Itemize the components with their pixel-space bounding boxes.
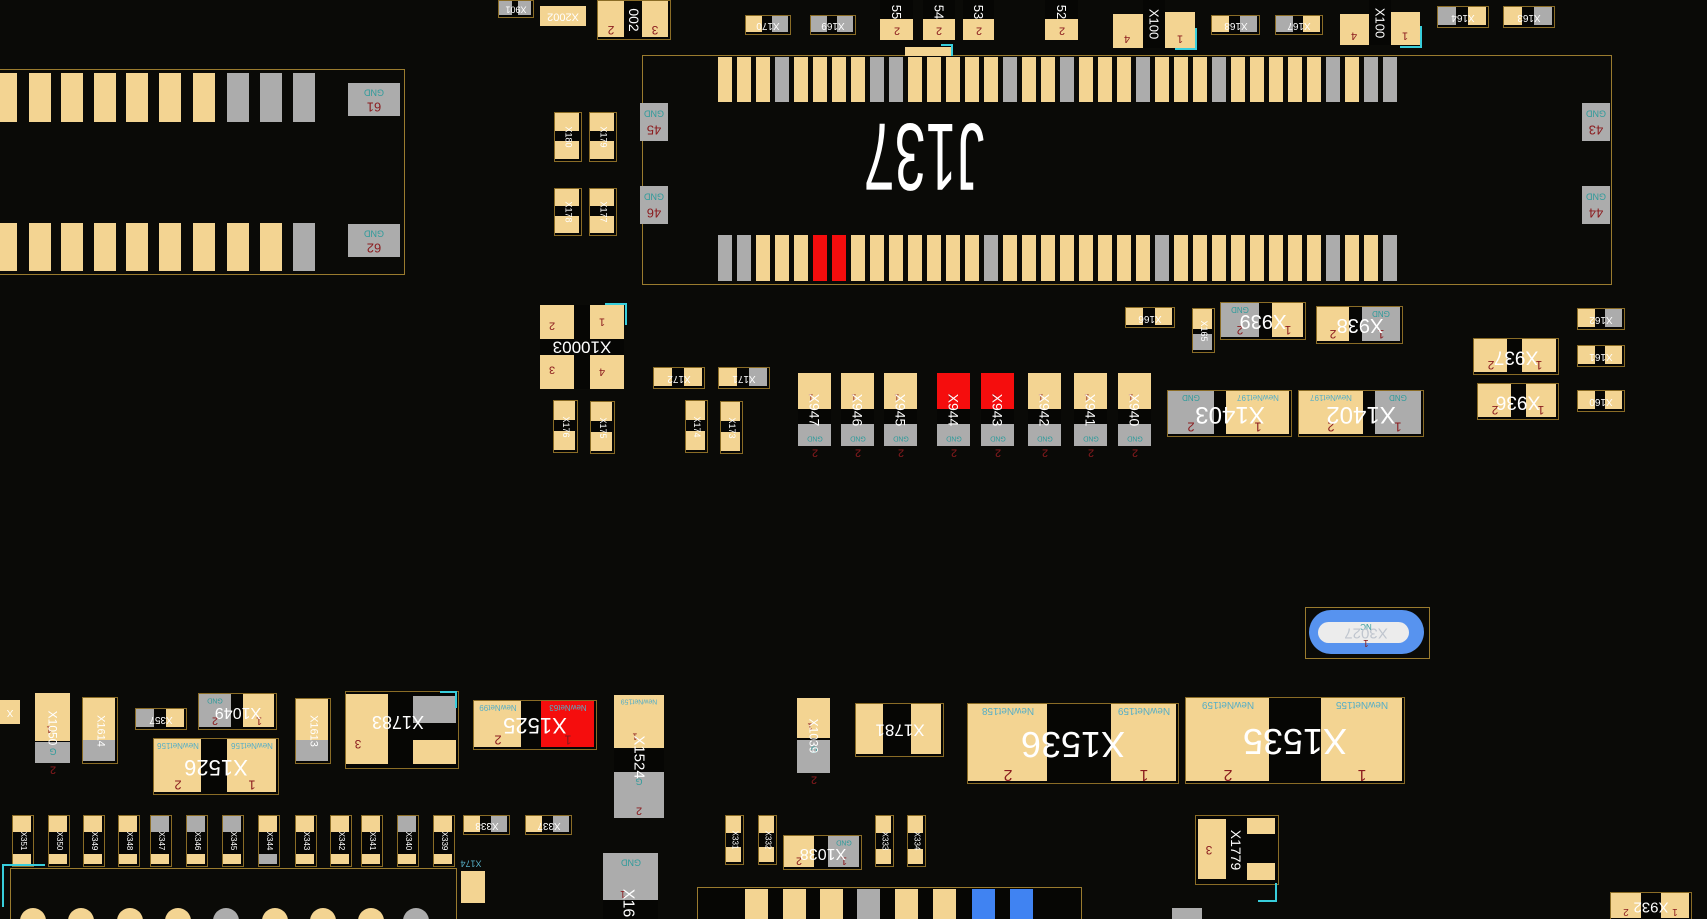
pad <box>718 235 732 281</box>
component-X938[interactable]: GND21X938 <box>1316 306 1403 344</box>
component-X1783[interactable]: X17833 <box>345 691 459 769</box>
ref-label: X171 <box>732 373 755 383</box>
ref-label: X338 <box>475 820 498 830</box>
ref-label: X1783 <box>372 713 424 731</box>
pin-number: 2 <box>811 447 817 458</box>
component-X165[interactable]: X165 <box>1192 308 1215 353</box>
pad <box>1247 818 1275 834</box>
ref-label: X161 <box>1589 351 1612 361</box>
pad <box>1364 57 1378 102</box>
pin-number: 4 <box>1124 33 1130 44</box>
net-label: GND <box>990 435 1006 442</box>
ref-label: X163 <box>1517 12 1540 22</box>
ref-label: X348 <box>125 832 133 851</box>
component-X345[interactable]: X345 <box>222 815 244 867</box>
ref-label: X944 <box>947 393 961 426</box>
ref-label: X342 <box>337 832 345 851</box>
ref-label: X <box>7 707 14 717</box>
component-X343[interactable]: X343 <box>295 815 317 867</box>
component-X1038[interactable]: GND21X1038 <box>783 835 862 870</box>
pad <box>1098 57 1112 102</box>
component-X333[interactable]: X333 <box>875 815 894 867</box>
ref-label: X168 <box>1224 20 1247 30</box>
selection-bracket-icon <box>625 303 627 325</box>
pad <box>434 854 452 864</box>
pad <box>1079 235 1093 281</box>
pad <box>590 305 624 339</box>
component-X177[interactable]: X177 <box>589 188 617 236</box>
ref-label: X334 <box>913 832 921 851</box>
pin-number: 2 <box>1330 328 1337 340</box>
component-X349[interactable]: X349 <box>83 815 105 867</box>
component-X164[interactable]: X164 <box>1437 6 1489 28</box>
pin-number: 2 <box>494 734 501 747</box>
component-X100b[interactable]: X10041 <box>1340 0 1420 45</box>
ref-label: X347 <box>157 832 165 851</box>
component-X350[interactable]: X350 <box>48 815 70 867</box>
ref-label: X173 <box>727 417 736 438</box>
component-X1781[interactable]: X1781 <box>855 703 944 757</box>
ref-label: X345 <box>229 832 237 851</box>
pin-number: 2 <box>1623 906 1629 916</box>
pad <box>870 57 884 102</box>
selection-bracket-icon <box>1275 883 1277 902</box>
component-X901[interactable]: X901 <box>498 0 534 18</box>
net-label: GND <box>1037 435 1053 442</box>
pad <box>1269 57 1283 102</box>
pad <box>398 854 416 864</box>
pin-number: 2 <box>1003 766 1012 782</box>
component-X180[interactable]: X180 <box>554 112 582 162</box>
component-X337[interactable]: X337 <box>525 815 572 835</box>
pad <box>151 854 169 864</box>
ref-label: X350 <box>55 832 63 851</box>
pad <box>745 889 768 919</box>
pad <box>434 816 452 832</box>
component-X176[interactable]: X176 <box>553 400 578 453</box>
ref-label-j137: J137 <box>864 108 985 204</box>
net-label: NewNet159 <box>621 698 658 705</box>
component-X1039[interactable]: 1G2X1039 <box>797 698 830 785</box>
board-canvas[interactable]: GND45GND46GND43GND44J137GND61GND62X901X2… <box>0 0 1707 919</box>
pad <box>223 854 241 864</box>
component-X162[interactable]: X162 <box>1577 308 1625 330</box>
pad <box>1326 235 1340 281</box>
component-X171[interactable]: X171 <box>718 367 770 389</box>
pad <box>1212 235 1226 281</box>
ref-label: X936 <box>1496 392 1540 411</box>
pad <box>1307 57 1321 102</box>
component-X1402[interactable]: NewNet197GND21X1402 <box>1298 390 1424 437</box>
pin-number: 2 <box>174 779 181 792</box>
net-label: GND <box>850 435 866 442</box>
ref-label: X349 <box>90 832 98 851</box>
ref-label: X351 <box>19 832 27 851</box>
pad <box>946 235 960 281</box>
pad <box>889 235 903 281</box>
net-label: NewNet156 <box>231 741 273 749</box>
ref-label: X169 <box>821 20 844 30</box>
component-X937[interactable]: 21X937 <box>1473 338 1559 375</box>
ref-label: X943 <box>991 393 1005 426</box>
ref-label: X178 <box>564 201 573 222</box>
pin-number: 2 <box>1041 447 1047 458</box>
pad <box>794 235 808 281</box>
component-X1536[interactable]: NewNet158NewNet15921X1536 <box>967 703 1179 784</box>
pad <box>126 223 148 271</box>
pin-number: 3 <box>549 364 555 375</box>
ref-label: X16 <box>620 889 636 917</box>
pad <box>61 73 83 122</box>
component-X952[interactable]: 522 <box>1045 0 1078 40</box>
ref-label: 55 <box>890 5 903 19</box>
pad <box>1079 57 1093 102</box>
pad <box>1364 235 1378 281</box>
component-X1613[interactable]: X1613 <box>295 698 331 764</box>
net-label: GND <box>644 192 664 201</box>
component-X1526[interactable]: NewNet156NewNet15621X1526 <box>153 738 279 795</box>
net-label: GND <box>946 435 962 442</box>
pad <box>813 235 827 281</box>
ref-label: X344 <box>265 832 273 851</box>
component-X351[interactable]: X351 <box>12 815 34 867</box>
component-X173[interactable]: X173 <box>720 401 743 454</box>
pad <box>1250 235 1264 281</box>
net-label: NewNet156 <box>157 741 199 749</box>
pin-number: 1 <box>599 316 605 327</box>
component-X3027[interactable]: NCX30271 <box>1305 607 1430 659</box>
pin-number: 4 <box>599 366 605 377</box>
pad <box>1022 235 1036 281</box>
ref-label: X938 <box>1336 315 1383 335</box>
component-X1403[interactable]: GNDNewNet19721X1403 <box>1167 390 1292 437</box>
ref-label: X939 <box>1240 311 1287 331</box>
selection-bracket-icon <box>1400 46 1422 48</box>
pad <box>13 816 31 832</box>
component-X2002-label[interactable]: X2002 <box>540 6 586 26</box>
pin-number: 45 <box>647 124 661 137</box>
pin-number: 2 <box>1058 25 1064 36</box>
ref-label: X1049 <box>214 704 260 720</box>
pad <box>187 854 205 864</box>
pad <box>362 816 380 832</box>
component-X1525[interactable]: NewNet99NewNet6321X1525 <box>473 700 597 750</box>
pad <box>119 816 137 832</box>
pad <box>413 740 456 764</box>
pad <box>1098 235 1112 281</box>
pin-number: 2 <box>636 805 642 816</box>
component-X944[interactable]: 1GND2X944 <box>937 373 970 458</box>
pad <box>946 57 960 102</box>
ref-label: X1402 <box>1326 402 1395 426</box>
component-X939[interactable]: GND21X939 <box>1220 302 1306 340</box>
component-X1535[interactable]: NewNet159NewNet15521X1535 <box>1185 697 1405 784</box>
ref-label: X331 <box>731 831 739 850</box>
component-X945[interactable]: 1GND2X945 <box>884 373 917 458</box>
pin-number: 46 <box>647 207 661 220</box>
pad <box>296 816 314 832</box>
net-label: GND <box>1586 192 1606 201</box>
pad <box>972 889 995 919</box>
component-X342[interactable]: X342 <box>330 815 352 867</box>
component-X1614[interactable]: X1614 <box>82 697 118 764</box>
pad <box>876 816 891 833</box>
component-X940[interactable]: 1GND2X940 <box>1118 373 1151 458</box>
component-X160[interactable]: X160 <box>1577 390 1625 412</box>
component-X932[interactable]: 21X932 <box>1610 892 1692 919</box>
pad <box>851 57 865 102</box>
pad <box>1155 235 1169 281</box>
selection-bracket-icon <box>2 864 45 866</box>
pad <box>933 889 956 919</box>
ref-label: X10003 <box>553 339 612 356</box>
ref-label: X166 <box>1138 313 1161 323</box>
component-X339[interactable]: X339 <box>433 815 455 867</box>
pad <box>540 355 574 389</box>
pad <box>259 854 277 864</box>
component-X946[interactable]: 1GND2X946 <box>841 373 874 458</box>
pad <box>260 73 282 122</box>
component-X1049[interactable]: GND21X1049 <box>198 693 277 730</box>
pin-number: 2 <box>810 774 816 785</box>
component-X344[interactable]: X344 <box>258 815 280 867</box>
component-X172[interactable]: X172 <box>653 367 705 389</box>
pin-number: 4 <box>1351 30 1357 41</box>
pad <box>1383 235 1397 281</box>
ref-label: X162 <box>1589 314 1612 324</box>
component-X942[interactable]: 1GND2X942 <box>1028 373 1061 458</box>
component-X943[interactable]: 1GND2X943 <box>981 373 1014 458</box>
pad <box>813 57 827 102</box>
pad <box>775 57 789 102</box>
pad <box>1231 235 1245 281</box>
ref-label: X946 <box>851 393 865 426</box>
pad <box>1193 57 1207 102</box>
pin-number: 2 <box>608 24 615 36</box>
pad <box>1117 235 1131 281</box>
gnd-pin-label: GND43 <box>1582 103 1610 141</box>
pad <box>1060 235 1074 281</box>
ref-label: X932 <box>1633 899 1668 914</box>
component-X1524[interactable]: NewNet1591G2X1524 <box>614 695 664 818</box>
ref-label: X174 <box>692 416 701 437</box>
pad <box>1383 57 1397 102</box>
pin-number: 2 <box>1223 766 1232 782</box>
pad <box>1231 57 1245 102</box>
net-label: GND <box>207 697 223 704</box>
ref-label: 54 <box>933 5 946 19</box>
pad <box>737 57 751 102</box>
pad <box>0 223 17 271</box>
pad <box>1345 57 1359 102</box>
pad <box>362 854 380 864</box>
component-X16[interactable]: GND1X16 <box>603 853 658 919</box>
pin-number: 1 <box>1363 637 1369 647</box>
pad <box>193 223 215 271</box>
pin-number: 62 <box>367 242 381 255</box>
pad <box>126 73 148 122</box>
pad <box>331 854 349 864</box>
pin-number: 61 <box>367 101 381 114</box>
pad <box>851 235 865 281</box>
component-X347[interactable]: X347 <box>150 815 172 867</box>
ref-label: X165 <box>1199 320 1208 341</box>
pad <box>1003 57 1017 102</box>
pad <box>293 223 315 271</box>
component-X334[interactable]: X334 <box>907 815 926 867</box>
net-label: NewNet197 <box>1237 393 1279 401</box>
component-X955[interactable]: 552 <box>880 0 913 40</box>
ref-label: 002 <box>627 8 641 31</box>
component-X346[interactable]: X346 <box>186 815 208 867</box>
ref-label: X340 <box>404 832 412 851</box>
component-X168[interactable]: X168 <box>1211 15 1260 35</box>
ref-label: X164 <box>1451 12 1474 22</box>
component-X357[interactable]: X357 <box>135 708 187 730</box>
pad <box>1060 57 1074 102</box>
pad <box>84 854 102 864</box>
pad <box>1117 57 1131 102</box>
component-X331[interactable]: X331 <box>725 815 744 865</box>
pad <box>1003 235 1017 281</box>
ref-label: X333 <box>881 832 889 851</box>
ref-label: 52 <box>1055 5 1068 19</box>
pin-number: 3 <box>652 24 659 36</box>
pad <box>756 57 770 102</box>
ref-label: X2002 <box>547 11 579 22</box>
component-X954[interactable]: 542 <box>923 0 955 40</box>
pin-number: 2 <box>854 447 860 458</box>
pad <box>590 355 624 389</box>
net-label: GND <box>644 109 664 118</box>
component-X936[interactable]: 21X936 <box>1477 383 1559 420</box>
component-X179[interactable]: X179 <box>589 112 617 162</box>
pad <box>540 305 574 339</box>
selection-bracket-icon <box>1195 28 1197 50</box>
selection-bracket-icon <box>605 303 627 305</box>
component-X166[interactable]: X166 <box>1125 307 1175 328</box>
component-X175[interactable]: X175 <box>590 401 615 454</box>
pad <box>94 223 116 271</box>
pad <box>1345 235 1359 281</box>
ref-label: X940 <box>1128 393 1142 426</box>
component-X167[interactable]: X167 <box>1275 15 1323 35</box>
net-label: NewNet155 <box>1335 699 1387 709</box>
component-X947[interactable]: 1GND2X947 <box>798 373 831 458</box>
net-label: NewNet159 <box>1201 699 1253 709</box>
component-X348[interactable]: X348 <box>118 815 140 867</box>
pad <box>293 73 315 122</box>
component-X341[interactable]: X341 <box>361 815 383 867</box>
pin-number: 2 <box>1131 447 1137 458</box>
pad <box>259 816 277 832</box>
component-X170[interactable]: X170 <box>745 15 791 35</box>
component-pad-x174 <box>461 871 485 903</box>
pad <box>870 235 884 281</box>
pin-number: 2 <box>893 25 899 36</box>
pin-number: 2 <box>549 320 555 331</box>
pin-number: 2 <box>1087 447 1093 458</box>
net-label: GND <box>364 88 384 97</box>
component-X169[interactable]: X169 <box>810 15 856 35</box>
component-X-edge[interactable]: X <box>0 700 20 724</box>
pad <box>1136 235 1150 281</box>
ref-label: X343 <box>302 832 310 851</box>
pin-number: 1 <box>1672 906 1678 916</box>
component-X338[interactable]: X338 <box>463 815 510 835</box>
pad <box>1250 57 1264 102</box>
pad <box>49 854 67 864</box>
pad <box>965 57 979 102</box>
component-X1779[interactable]: X17793 <box>1195 815 1279 885</box>
net-label: GND <box>893 435 909 442</box>
component-X332[interactable]: X332 <box>758 815 777 865</box>
component-X340[interactable]: X340 <box>397 815 419 867</box>
pad <box>783 889 806 919</box>
component-X10003[interactable]: 2134X10003 <box>540 305 624 389</box>
ref-label: X1535 <box>1243 723 1347 759</box>
component-X174[interactable]: X174 <box>685 400 708 453</box>
net-label: NewNet63 <box>549 703 586 711</box>
pin-number: 2 <box>49 764 55 775</box>
component-X953[interactable]: 532 <box>963 0 994 40</box>
pad <box>1193 235 1207 281</box>
pad <box>1326 57 1340 102</box>
component-tan-sliver <box>905 47 953 56</box>
ref-label: X100 <box>1374 7 1387 37</box>
ref-label: X100 <box>1148 9 1161 39</box>
ref-label: X1524 <box>632 735 647 778</box>
net-label: GND <box>1389 393 1407 401</box>
pad <box>908 816 923 833</box>
component-X178[interactable]: X178 <box>554 188 582 236</box>
pin-number: 1 <box>1357 766 1366 782</box>
ref-label: X357 <box>149 714 172 724</box>
selection-bracket-icon <box>455 691 457 708</box>
ref-label: X1614 <box>95 715 106 747</box>
selection-bracket-icon <box>951 44 953 56</box>
pad <box>187 816 205 832</box>
pad <box>1269 235 1283 281</box>
pad <box>29 73 51 122</box>
pin-number: 3 <box>1206 844 1213 856</box>
pad <box>908 849 923 864</box>
ref-label: X945 <box>894 393 908 426</box>
component-X163[interactable]: X163 <box>1503 6 1555 28</box>
gnd-pin-label: GND45 <box>640 103 668 141</box>
pin-number: 2 <box>994 447 1000 458</box>
ref-label: X160 <box>1589 396 1612 406</box>
pad <box>1174 235 1188 281</box>
pad <box>13 854 31 864</box>
component-X161[interactable]: X161 <box>1577 345 1625 367</box>
pad <box>1174 57 1188 102</box>
net-label: GND <box>1083 435 1099 442</box>
ref-label: X942 <box>1038 393 1052 426</box>
selection-bracket-icon <box>2 864 4 907</box>
component-X2002[interactable]: 23002 <box>597 0 671 40</box>
gnd-pin-label: GND46 <box>640 186 668 224</box>
pad <box>223 816 241 832</box>
pad <box>857 889 880 919</box>
component-X1050[interactable]: 1G2X1050 <box>35 693 70 775</box>
component-X941[interactable]: 1GND2X941 <box>1074 373 1107 458</box>
ref-label: X947 <box>808 393 822 426</box>
pin-number: 44 <box>1589 207 1603 220</box>
component-X100a[interactable]: X10041 <box>1113 0 1195 48</box>
pin-number: 1 <box>1402 30 1408 41</box>
pad <box>1041 57 1055 102</box>
